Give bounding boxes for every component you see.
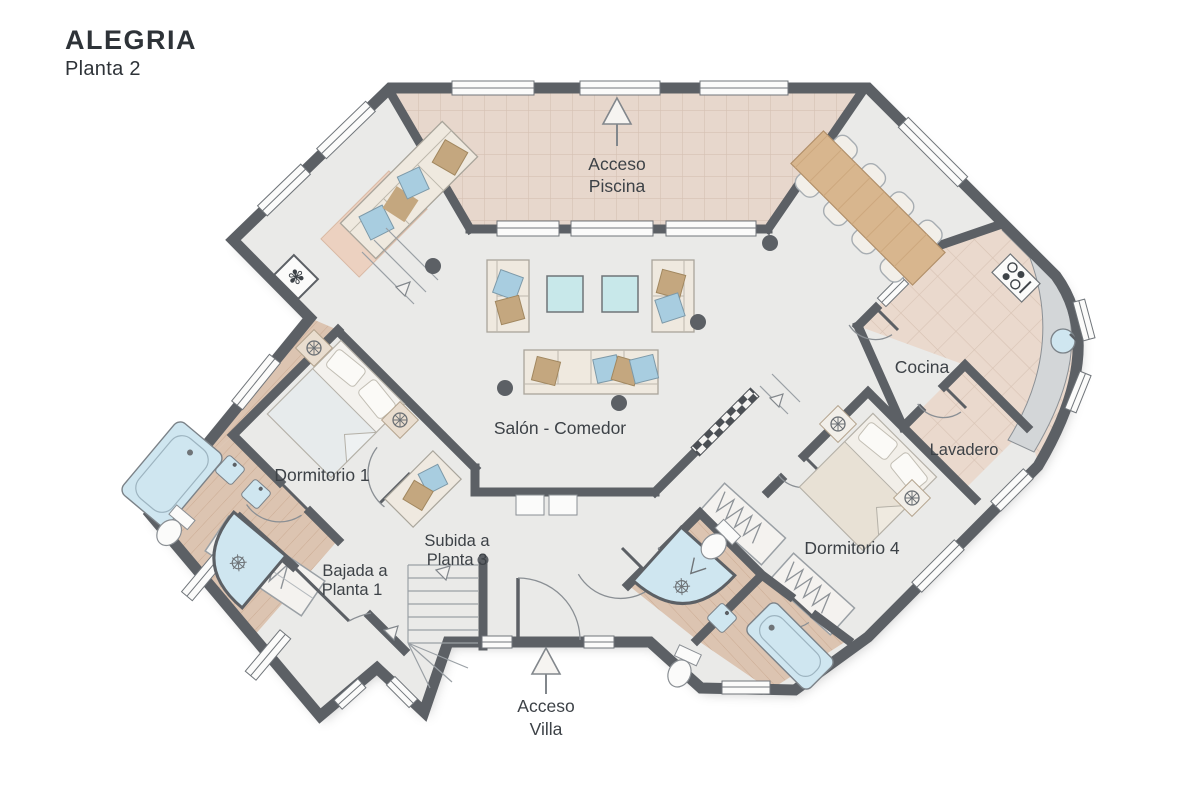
label-kitchen: Cocina bbox=[895, 357, 950, 377]
villa-access-arrow bbox=[532, 648, 560, 694]
column bbox=[611, 395, 627, 411]
floor-plan-page: ALEGRIA Planta 2 bbox=[0, 0, 1200, 800]
armchair-right bbox=[652, 260, 694, 332]
label-pool-access-1: Acceso bbox=[588, 154, 645, 174]
column bbox=[425, 258, 441, 274]
armchair-left bbox=[487, 260, 529, 332]
label-villa-access-2: Villa bbox=[530, 719, 563, 739]
coffee-table-left bbox=[547, 276, 583, 312]
coffee-table-right bbox=[602, 276, 638, 312]
label-laundry: Lavadero bbox=[930, 441, 999, 459]
label-stairs-up-2: Planta 3 bbox=[427, 551, 488, 569]
center-sofa bbox=[524, 350, 659, 394]
hall-cabinet-1 bbox=[516, 495, 544, 515]
column bbox=[497, 380, 513, 396]
label-stairs-down-1: Bajada a bbox=[322, 562, 388, 580]
label-stairs-down-2: Planta 1 bbox=[322, 581, 383, 599]
label-villa-access-1: Acceso bbox=[517, 696, 574, 716]
label-stairs-up-1: Subida a bbox=[424, 532, 490, 550]
column bbox=[690, 314, 706, 330]
column bbox=[762, 235, 778, 251]
floor-plan-canvas: ✾ bbox=[0, 0, 1200, 800]
label-bedroom1: Dormitorio 1 bbox=[274, 465, 369, 485]
hall-cabinet-2 bbox=[549, 495, 577, 515]
label-bedroom4: Dormitorio 4 bbox=[804, 538, 900, 558]
label-living-dining: Salón - Comedor bbox=[494, 418, 626, 438]
label-pool-access-2: Piscina bbox=[589, 176, 646, 196]
terrace-glass-doors bbox=[497, 221, 756, 236]
